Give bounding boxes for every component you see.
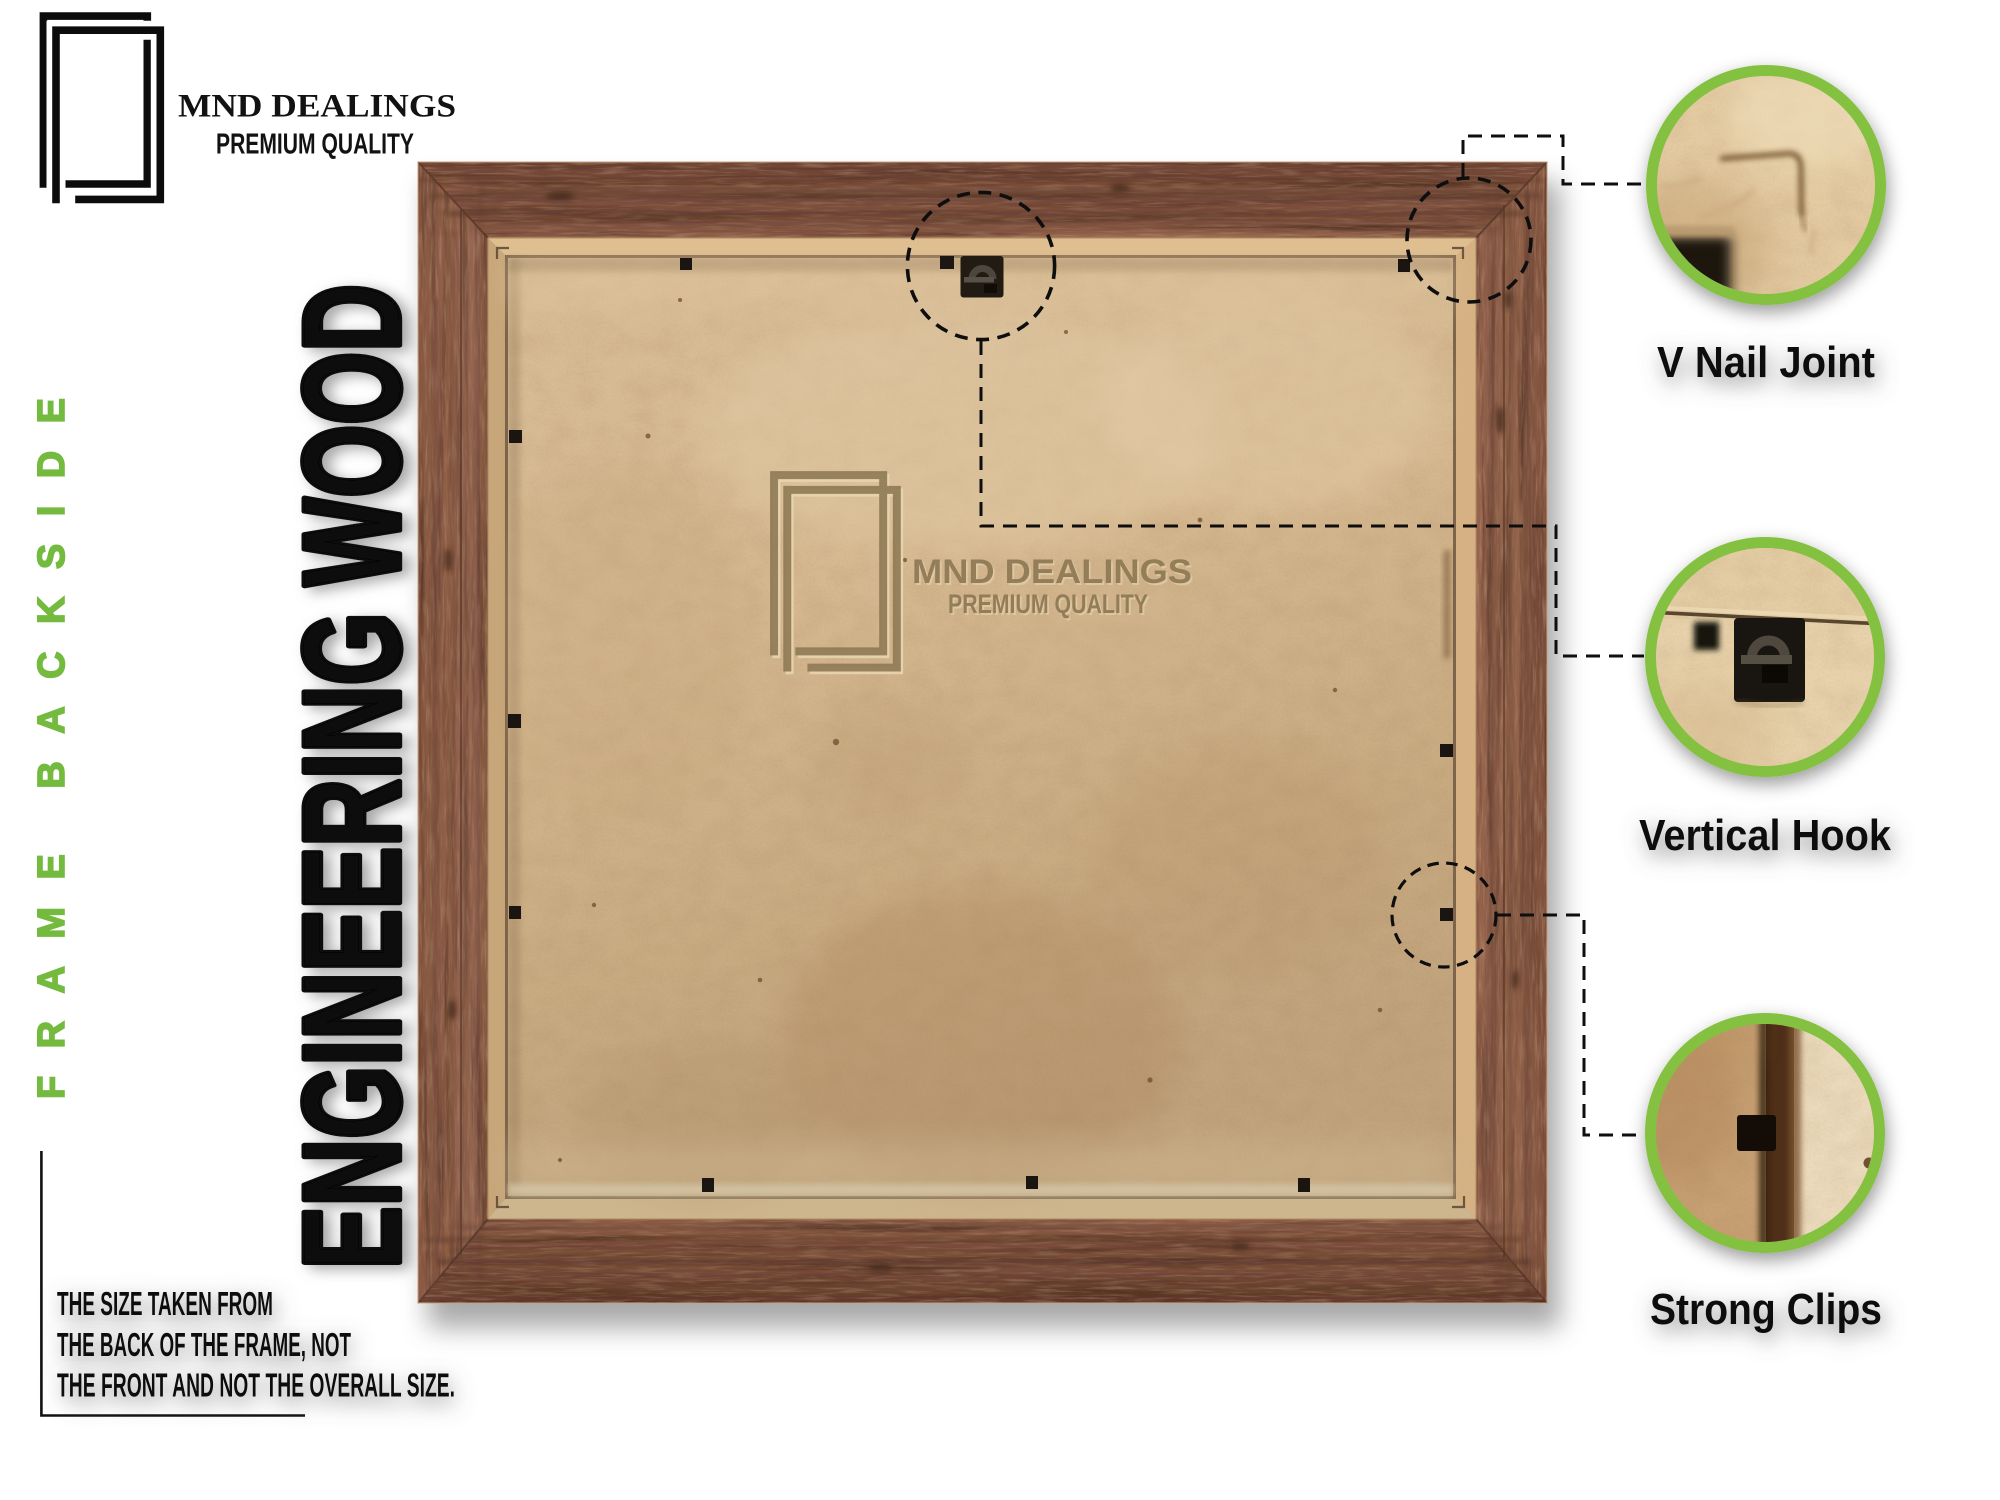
svg-text:MND DEALINGS: MND DEALINGS <box>912 553 1192 591</box>
svg-text:MND DEALINGS: MND DEALINGS <box>178 89 456 125</box>
svg-text:Strong Clips: Strong Clips <box>1650 1285 1882 1334</box>
svg-text:V Nail Joint: V Nail Joint <box>1657 338 1875 387</box>
svg-text:THE FRONT AND NOT THE OVERALL: THE FRONT AND NOT THE OVERALL SIZE. <box>57 1366 455 1403</box>
svg-text:THE SIZE TAKEN FROM: THE SIZE TAKEN FROM <box>57 1285 273 1322</box>
svg-text:PREMIUM QUALITY: PREMIUM QUALITY <box>948 589 1148 619</box>
svg-text:PREMIUM QUALITY: PREMIUM QUALITY <box>216 129 414 161</box>
svg-text:Vertical Hook: Vertical Hook <box>1639 811 1891 860</box>
svg-text:ENGINEERING WOOD: ENGINEERING WOOD <box>276 284 429 1269</box>
svg-text:THE BACK OF THE FRAME, NOT: THE BACK OF THE FRAME, NOT <box>57 1326 351 1363</box>
